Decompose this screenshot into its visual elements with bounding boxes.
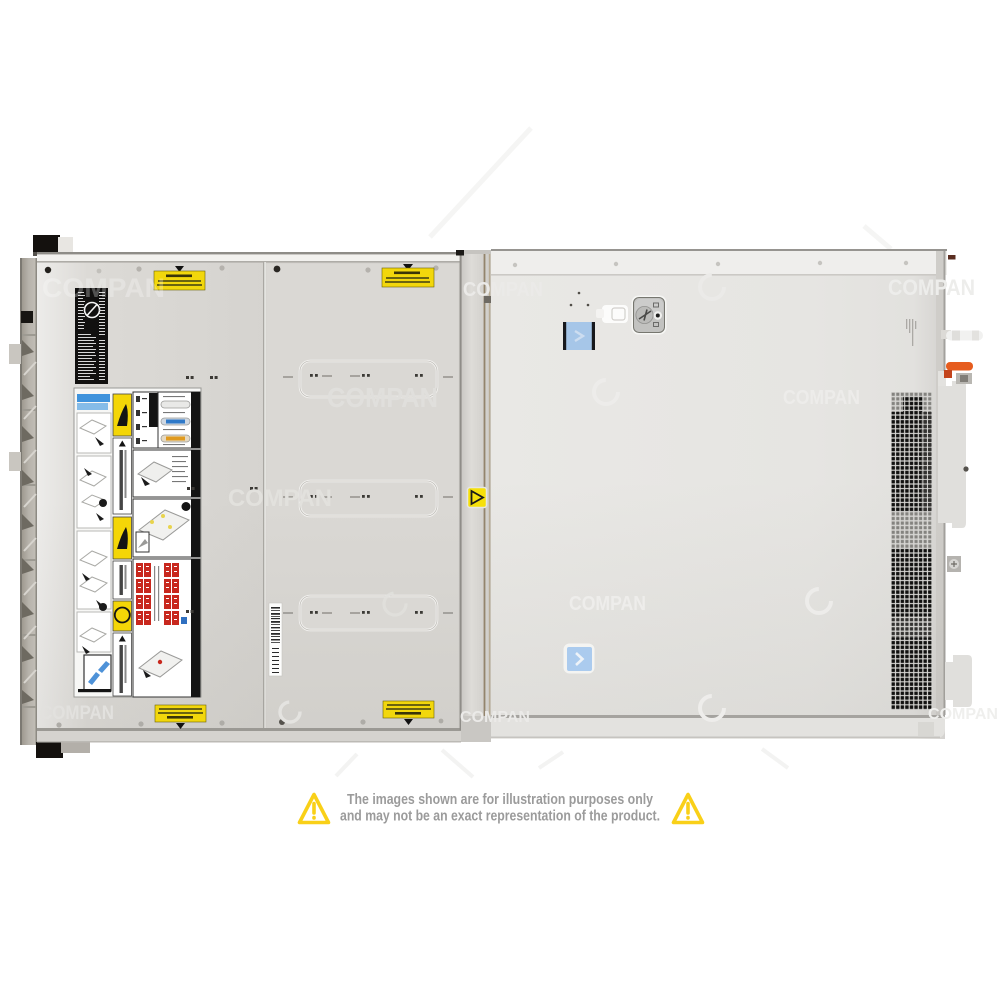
- svg-text:COMPAN: COMPAN: [228, 485, 332, 512]
- svg-text:COMPAN: COMPAN: [460, 709, 530, 726]
- svg-text:COMPAN: COMPAN: [42, 273, 165, 303]
- svg-text:The images shown are for illus: The images shown are for illustration pu…: [347, 792, 653, 808]
- svg-text:COMPAN: COMPAN: [569, 593, 646, 615]
- svg-text:COMPAN: COMPAN: [40, 703, 114, 724]
- svg-text:and may not be an exact repres: and may not be an exact representation o…: [340, 809, 660, 825]
- svg-text:COMPAN: COMPAN: [463, 279, 543, 301]
- svg-text:COMPAN: COMPAN: [327, 382, 438, 413]
- svg-text:COMPAN: COMPAN: [928, 706, 998, 723]
- svg-text:COMPAN: COMPAN: [783, 387, 860, 409]
- svg-text:COMPAN: COMPAN: [888, 275, 975, 300]
